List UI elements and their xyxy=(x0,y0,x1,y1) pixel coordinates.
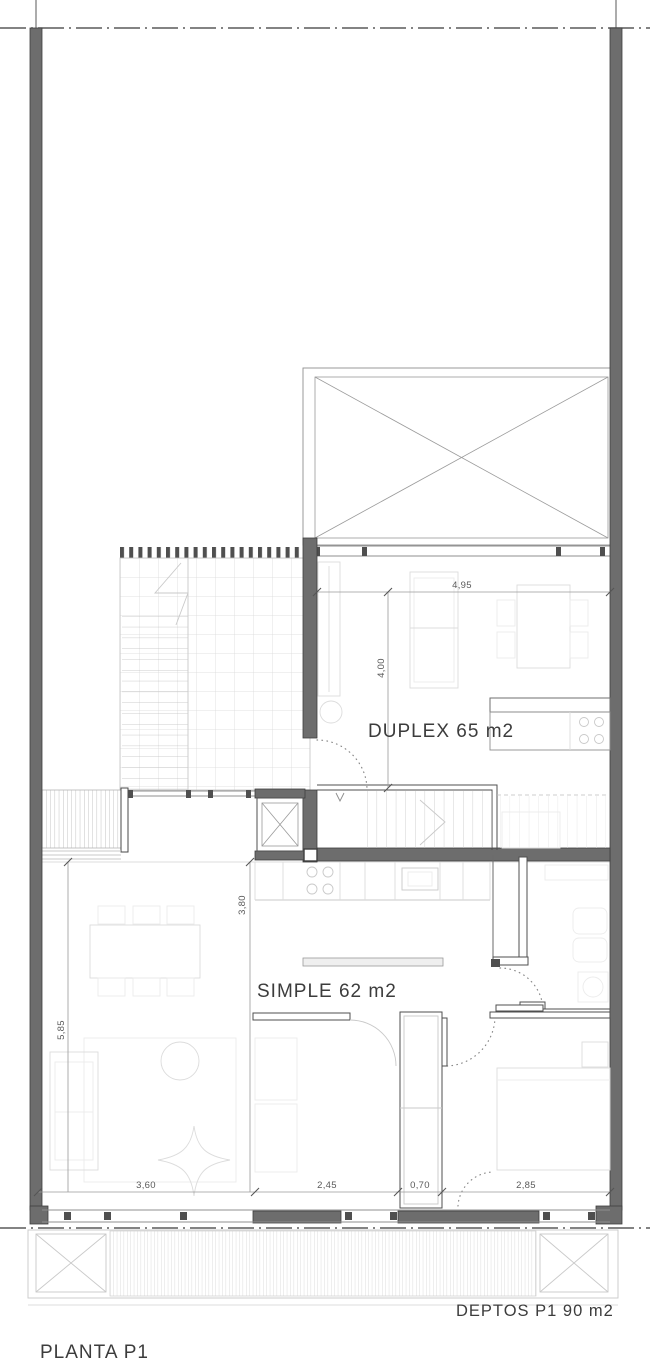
bath-corridor-walls xyxy=(491,855,610,1016)
floor-plan-sheet: 4,95 4,00 3,80 5,85 3,60 2,45 0,70 2,85 … xyxy=(0,0,650,1367)
wall-mid-upper xyxy=(303,538,317,738)
duplex-basin xyxy=(320,701,342,723)
bedroom-door-swing xyxy=(447,1018,495,1066)
duplex-dining-table xyxy=(517,585,570,668)
wall-left xyxy=(30,28,42,1210)
window-panel-1 xyxy=(253,1211,341,1223)
door-swing-solid xyxy=(350,1020,396,1066)
bottom-partitions xyxy=(253,1005,610,1208)
dining-table xyxy=(90,925,200,978)
site-boundary-lines xyxy=(0,0,650,1228)
bedroom-furniture xyxy=(497,1042,610,1170)
door-leaf xyxy=(442,1018,447,1066)
dim-bottom-room1: 2,45 xyxy=(317,1180,337,1191)
living-furniture xyxy=(50,906,297,1196)
desk xyxy=(255,1038,297,1100)
sofa xyxy=(50,1052,98,1170)
dim-duplex-width: 4,95 xyxy=(452,580,472,591)
shaft-wall-top xyxy=(255,789,305,798)
duplex-cooktop xyxy=(580,718,589,727)
shaft-wall-bottom xyxy=(255,851,305,860)
floor-plan-canvas: 4,95 4,00 3,80 5,85 3,60 2,45 0,70 2,85 … xyxy=(0,0,650,1367)
simple-kitchen xyxy=(255,862,490,966)
wall-corner-left xyxy=(30,1206,48,1224)
drawing-title: PLANTA P1 xyxy=(40,1342,149,1363)
duplex-north-window xyxy=(303,546,610,556)
simple-sink xyxy=(402,868,438,890)
dim-bottom-room2: 2,85 xyxy=(516,1180,536,1191)
decor-star xyxy=(158,1126,230,1196)
dim-bottom-living: 3,60 xyxy=(136,1180,156,1191)
pergola-louver-row xyxy=(118,547,302,558)
upper-stair-treads xyxy=(122,616,188,790)
label-simple: SIMPLE 62 m2 xyxy=(257,981,397,1002)
walls xyxy=(30,28,622,1224)
central-stair xyxy=(317,785,608,850)
void-double-height xyxy=(303,368,612,545)
terrace-door-swing xyxy=(458,1172,494,1206)
dim-living-height: 5,85 xyxy=(56,1020,67,1040)
bathroom-fixtures xyxy=(545,865,608,1002)
dim-simple-depth: 3,80 xyxy=(237,895,248,915)
coffee-table xyxy=(161,1042,199,1080)
dim-duplex-depth: 4,00 xyxy=(376,658,387,678)
breakfast-bar xyxy=(303,958,443,966)
toilet xyxy=(573,908,607,934)
nightstand xyxy=(582,1042,608,1067)
duplex-entry-door-swing xyxy=(317,740,367,790)
partition-left xyxy=(253,1013,350,1020)
bath-vanity xyxy=(545,865,608,880)
window-panel-2 xyxy=(398,1211,539,1223)
duplex-kitchen-counter xyxy=(490,698,610,712)
duplex-terrace xyxy=(120,558,310,790)
dim-bottom-closet: 0,70 xyxy=(410,1180,430,1191)
bidet xyxy=(573,938,607,962)
hall-glazing xyxy=(128,790,255,798)
wall-right xyxy=(610,28,622,1210)
washer xyxy=(578,972,608,1002)
cabinet xyxy=(255,1104,297,1172)
partition-right xyxy=(490,1012,610,1018)
shaft xyxy=(257,798,303,851)
bed xyxy=(497,1068,610,1170)
stair-entry-arrow xyxy=(336,793,344,801)
label-duplex: DUPLEX 65 m2 xyxy=(368,721,514,742)
entry-walkway xyxy=(42,788,128,859)
closet-column xyxy=(400,1012,442,1208)
shelf-over-partition xyxy=(496,1005,543,1011)
column-junction xyxy=(304,849,317,861)
wall-corner-right xyxy=(596,1206,622,1224)
wall-party-horizontal xyxy=(317,848,610,861)
duplex-sofa xyxy=(410,572,458,688)
label-area-note: DEPTOS P1 90 m2 xyxy=(456,1302,614,1320)
simple-cooktop xyxy=(307,867,317,877)
south-deck xyxy=(28,1230,618,1305)
